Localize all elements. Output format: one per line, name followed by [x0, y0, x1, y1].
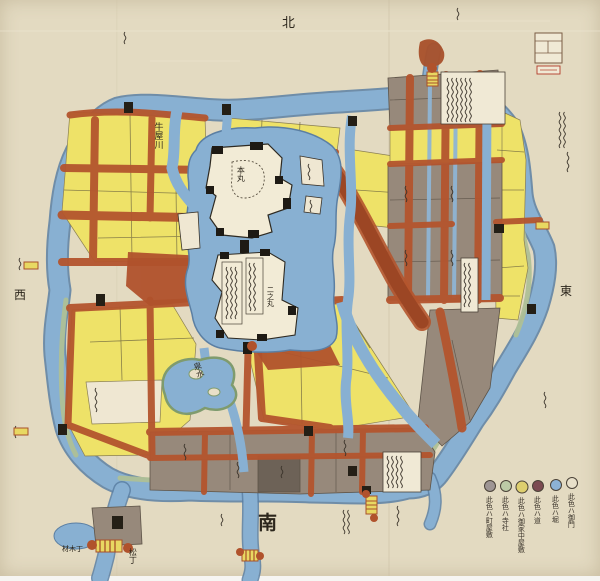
legend-swatch-roads	[533, 481, 544, 492]
legend-swatch-moats	[551, 480, 562, 491]
label-second-bailey: 二之丸	[266, 286, 273, 307]
library-stamp	[535, 33, 562, 74]
map-artwork	[0, 0, 600, 581]
label-main-bailey: 本丸	[236, 166, 244, 182]
legend-swatch-retainers	[516, 481, 528, 493]
compass-south: 南	[258, 508, 277, 535]
compass-west: 西	[14, 286, 26, 303]
compass-east: 東	[560, 282, 572, 299]
label-zaimoku-cho: 材木丁	[62, 544, 83, 554]
label-matsu-cho: 松丁	[128, 548, 136, 564]
legend-swatch-temples	[501, 481, 512, 492]
legend-label-townhouses: 此色ハ町屋敷	[485, 496, 492, 538]
legend-label-retainers: 此色ハ御家中屋敷	[517, 497, 524, 553]
legend-label-gates: 此色ハ御門	[567, 493, 574, 528]
legend-swatches	[485, 478, 578, 494]
legend-swatch-townhouses	[485, 481, 496, 492]
legend-label-temples: 此色ハ寺社	[501, 496, 508, 531]
label-river: 牛屋川	[152, 122, 161, 149]
legend-label-roads: 此色ハ道	[533, 496, 540, 524]
castle-map-scan: 北 南 西 東 牛屋川 本丸 二之丸 泉水 松丁 材木丁 此色ハ町屋敷 此色ハ寺…	[0, 0, 600, 581]
compass-north: 北	[282, 12, 295, 31]
legend-swatch-gates	[567, 478, 578, 489]
inner-gate-bridge	[240, 240, 249, 253]
legend-label-moats: 此色ハ堀	[551, 495, 558, 523]
